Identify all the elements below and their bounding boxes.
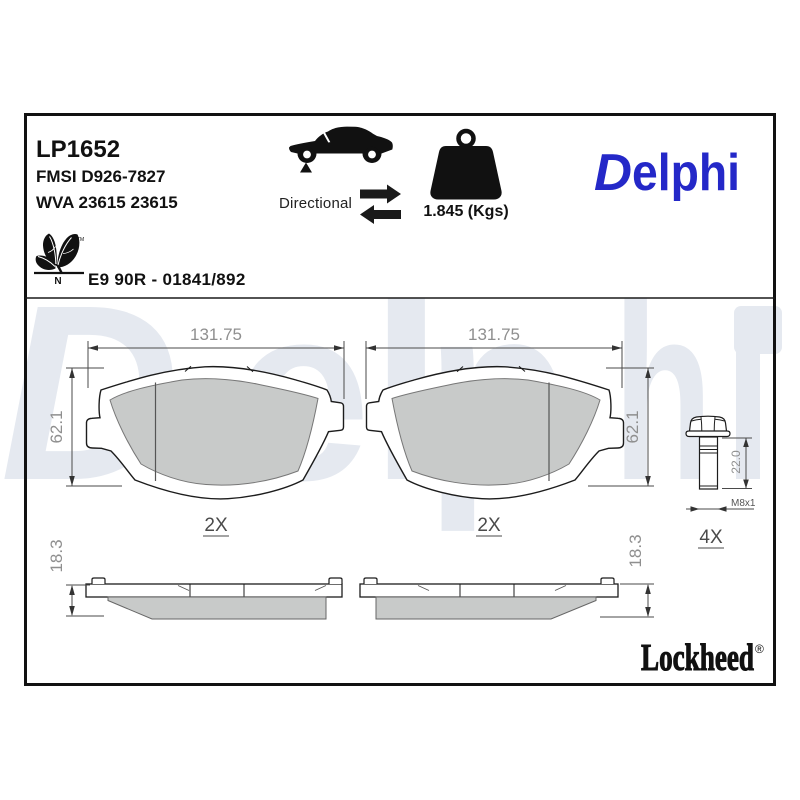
svg-text:N: N bbox=[54, 276, 61, 287]
svg-text:131.75: 131.75 bbox=[468, 325, 520, 344]
svg-text:Lockheed: Lockheed bbox=[641, 637, 754, 679]
svg-text:E9 90R - 01841/892: E9 90R - 01841/892 bbox=[88, 270, 246, 289]
svg-text:elphi: elphi bbox=[632, 144, 740, 202]
svg-text:18.3: 18.3 bbox=[47, 539, 66, 572]
svg-text:TM: TM bbox=[77, 237, 84, 243]
svg-text:FMSI D926-7827: FMSI D926-7827 bbox=[36, 167, 165, 186]
svg-text:2X: 2X bbox=[477, 515, 501, 536]
svg-text:2X: 2X bbox=[204, 515, 228, 536]
svg-text:LP1652: LP1652 bbox=[36, 136, 120, 163]
svg-text:®: ® bbox=[755, 642, 764, 656]
svg-text:22.0: 22.0 bbox=[729, 450, 743, 474]
svg-text:Directional: Directional bbox=[279, 195, 352, 212]
svg-text:M8x1: M8x1 bbox=[731, 498, 756, 509]
svg-text:131.75: 131.75 bbox=[190, 325, 242, 344]
svg-text:62.1: 62.1 bbox=[623, 410, 642, 443]
svg-text:1.845 (Kgs): 1.845 (Kgs) bbox=[423, 203, 508, 220]
svg-text:WVA 23615 23615: WVA 23615 23615 bbox=[36, 193, 178, 212]
svg-text:h: h bbox=[613, 253, 713, 532]
svg-text:18.3: 18.3 bbox=[626, 534, 645, 567]
svg-text:4X: 4X bbox=[699, 527, 723, 548]
svg-text:D: D bbox=[594, 144, 632, 202]
svg-text:62.1: 62.1 bbox=[47, 410, 66, 443]
